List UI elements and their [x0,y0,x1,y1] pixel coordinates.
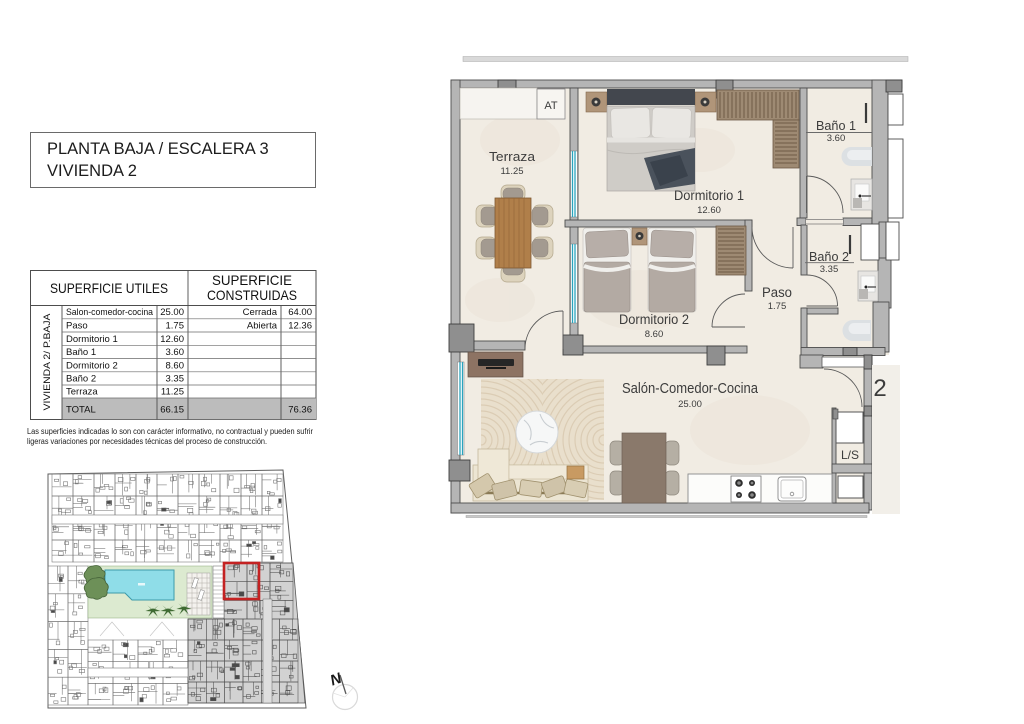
svg-text:2: 2 [873,375,886,402]
svg-text:3.35: 3.35 [820,264,839,275]
svg-text:Paso: Paso [762,285,792,300]
svg-text:1.75: 1.75 [166,321,185,332]
svg-text:CONSTRUIDAS: CONSTRUIDAS [207,287,297,303]
svg-text:AT: AT [544,100,558,112]
svg-text:Terraza: Terraza [66,387,98,398]
svg-text:Salón-Comedor-Cocina: Salón-Comedor-Cocina [622,380,759,397]
svg-text:N: N [328,669,345,689]
svg-text:Las superficies indicadas lo s: Las superficies indicadas lo son con car… [27,427,313,436]
svg-text:ligeras variaciones por necesi: ligeras variaciones por necesidades técn… [27,437,267,446]
svg-text:25.00: 25.00 [678,399,702,410]
svg-text:66.15: 66.15 [160,405,184,416]
svg-text:11.25: 11.25 [161,387,184,398]
svg-text:Baño 1: Baño 1 [816,119,856,133]
svg-text:Abierta: Abierta [247,321,278,332]
svg-text:1.75: 1.75 [768,301,787,312]
svg-text:64.00: 64.00 [288,307,312,318]
svg-text:Baño 2: Baño 2 [66,374,96,385]
svg-text:12.36: 12.36 [288,321,312,332]
svg-text:Dormitorio 1: Dormitorio 1 [66,334,118,345]
svg-text:Salon-comedor-cocina: Salon-comedor-cocina [66,307,154,318]
svg-text:12.60: 12.60 [160,334,184,345]
svg-text:SUPERFICIE UTILES: SUPERFICIE UTILES [50,280,168,296]
svg-text:Dormitorio 2: Dormitorio 2 [66,360,118,371]
svg-text:SUPERFICIE: SUPERFICIE [212,272,292,288]
svg-text:3.35: 3.35 [166,374,185,385]
svg-text:TOTAL: TOTAL [66,405,96,416]
svg-text:Dormitorio 2: Dormitorio 2 [619,312,689,327]
svg-text:8.60: 8.60 [166,360,185,371]
svg-text:3.60: 3.60 [827,133,846,144]
svg-text:Cerrada: Cerrada [243,307,278,318]
svg-text:PLANTA BAJA / ESCALERA 3: PLANTA BAJA / ESCALERA 3 [47,140,269,158]
svg-text:Dormitorio 1: Dormitorio 1 [674,188,744,203]
svg-text:11.25: 11.25 [500,166,523,177]
svg-text:VIVIENDA 2: VIVIENDA 2 [47,162,137,180]
svg-text:76.36: 76.36 [288,405,312,416]
svg-text:Paso: Paso [66,321,88,332]
svg-text:Terraza: Terraza [489,149,536,164]
svg-text:VIVIENDA 2/ P.BAJA: VIVIENDA 2/ P.BAJA [42,313,53,411]
svg-text:3.60: 3.60 [166,347,185,358]
svg-text:L/S: L/S [841,448,859,462]
svg-text:12.60: 12.60 [697,205,721,216]
svg-text:Baño 2: Baño 2 [809,250,849,264]
svg-text:8.60: 8.60 [645,329,664,340]
svg-text:25.00: 25.00 [160,307,184,318]
svg-text:Baño 1: Baño 1 [66,347,96,358]
